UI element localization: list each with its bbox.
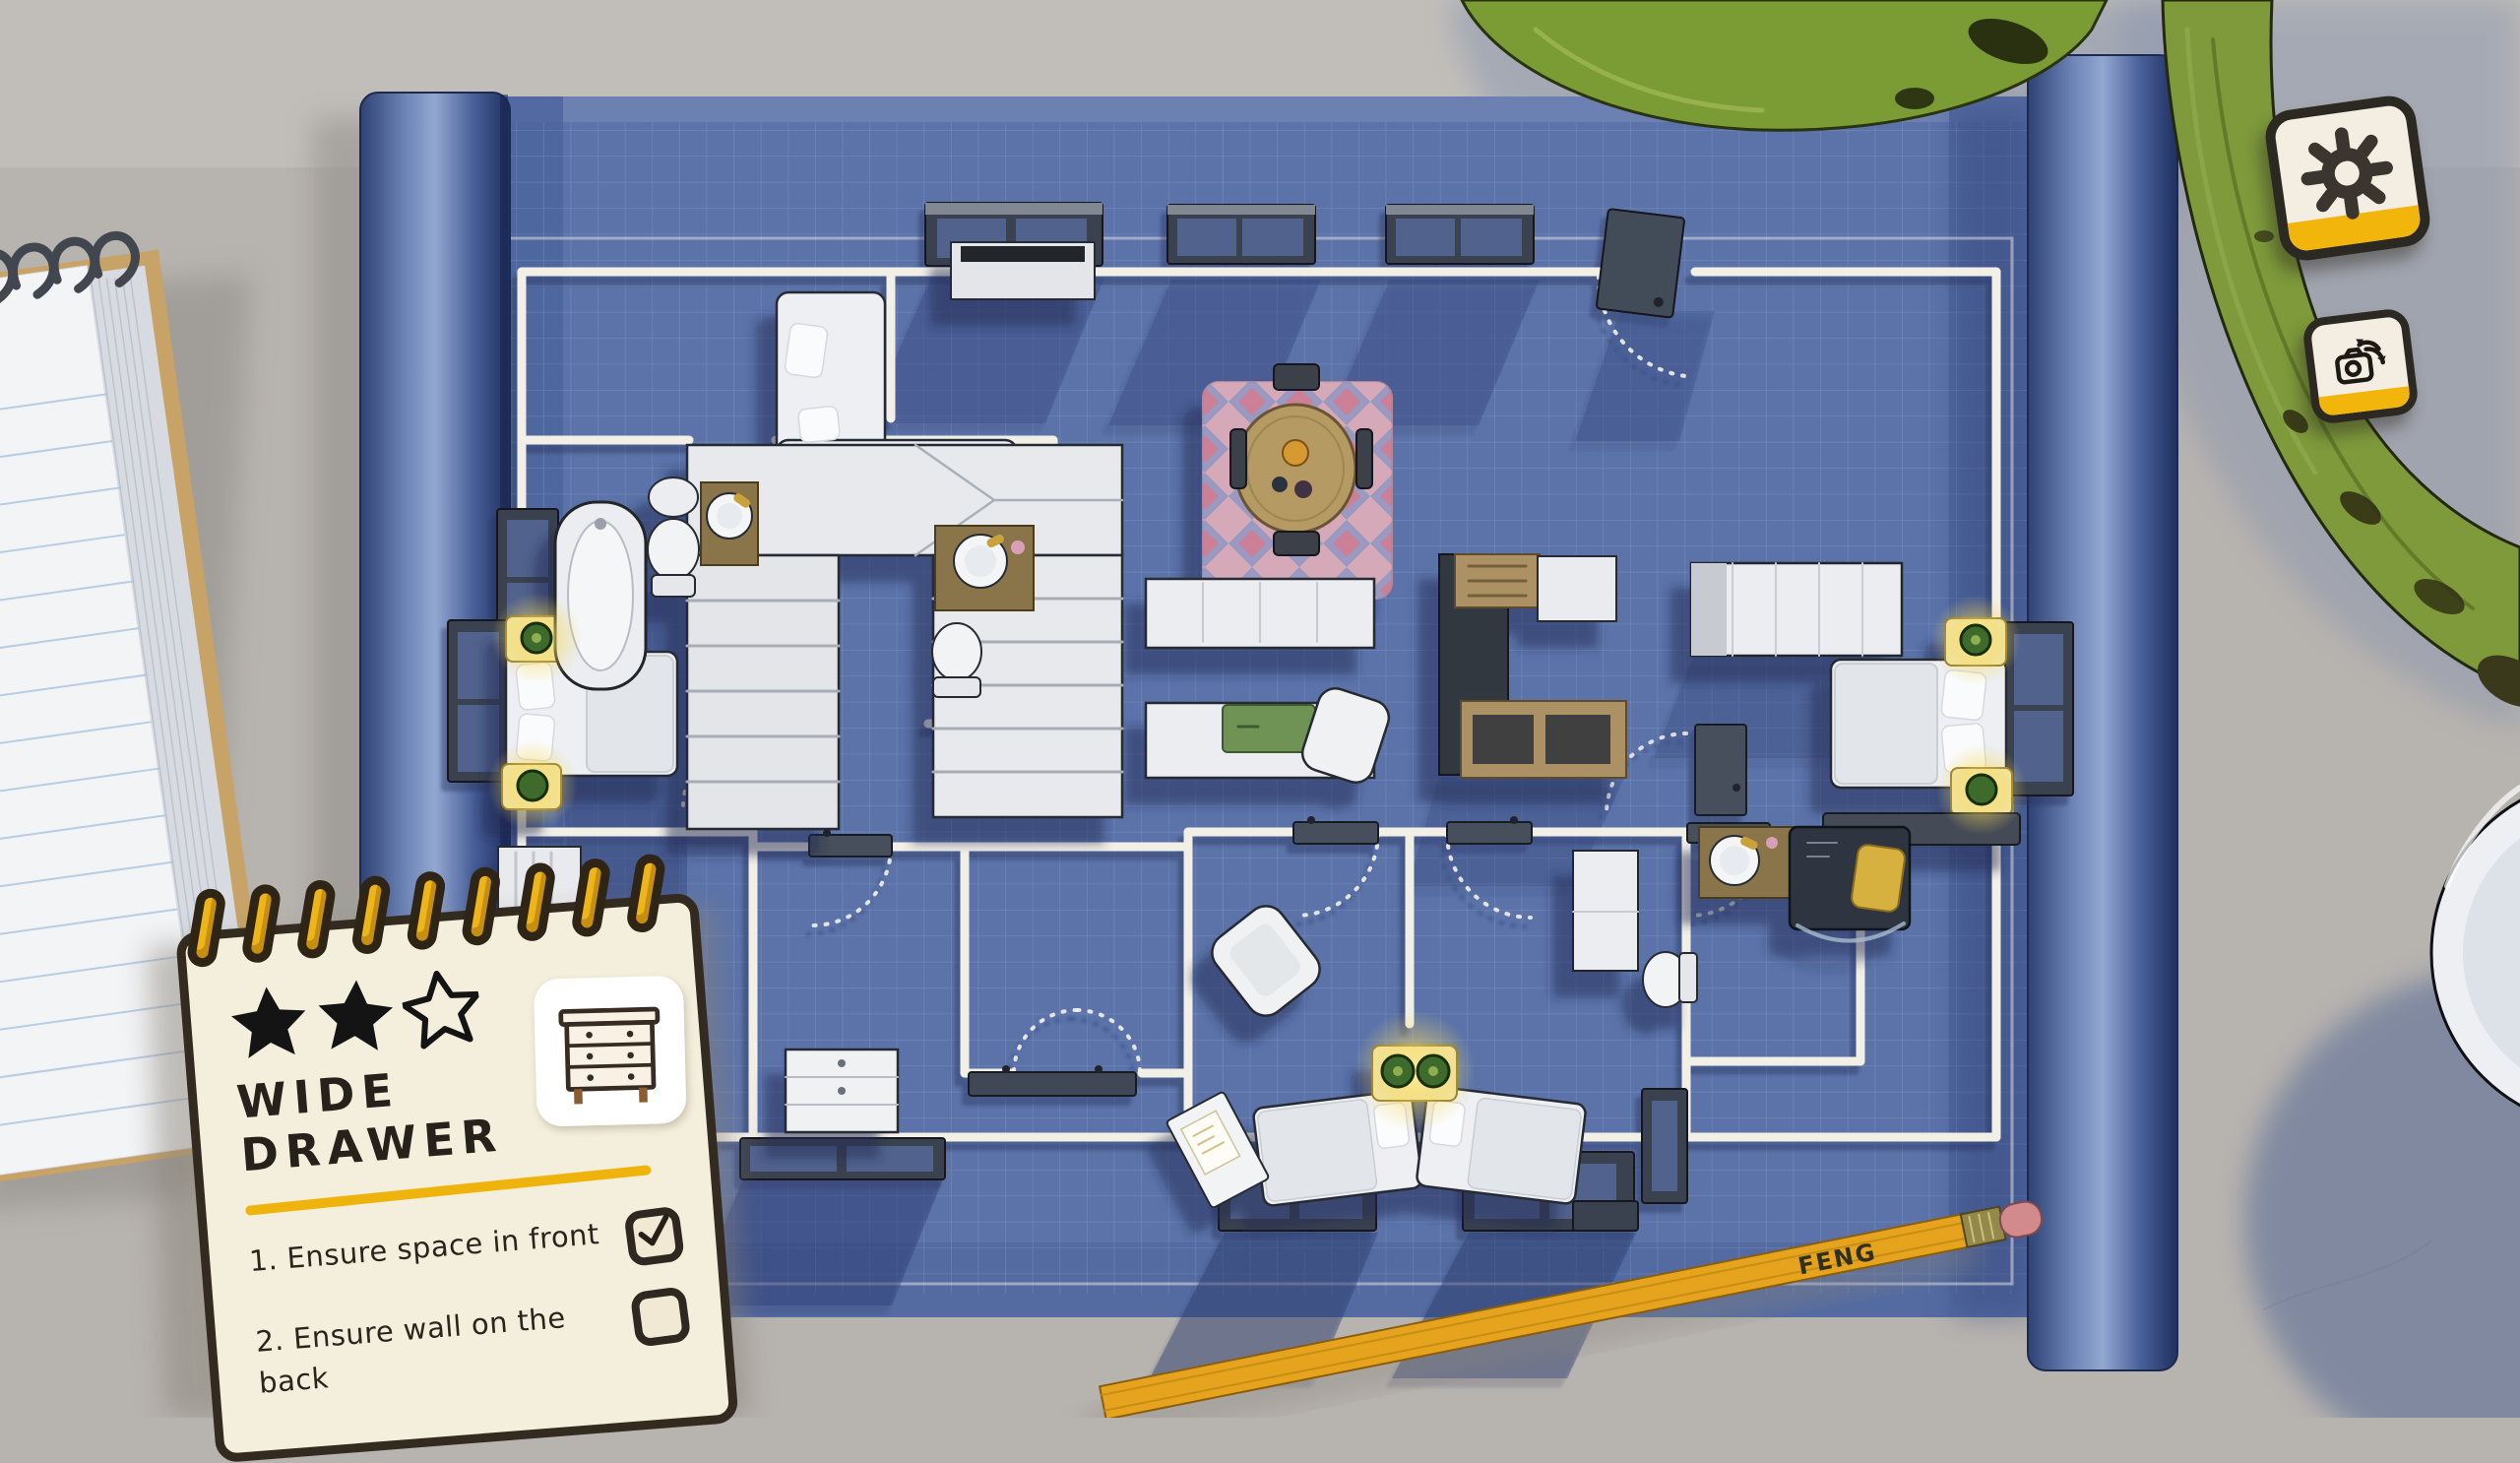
door-leaf[interactable] xyxy=(809,835,892,857)
gear-icon xyxy=(2294,120,2400,226)
window-pane xyxy=(847,1146,933,1172)
lamp-top xyxy=(1971,635,1981,645)
task-label: 2. Ensure wall on the back xyxy=(254,1293,621,1404)
sofa-pillow[interactable] xyxy=(785,323,829,379)
toilet-tank xyxy=(1679,953,1697,1002)
door-handle xyxy=(1095,1065,1102,1073)
bed-duvet xyxy=(1835,664,1937,784)
toilet[interactable] xyxy=(932,623,981,680)
soap xyxy=(1766,837,1778,849)
window-pane xyxy=(1177,219,1236,256)
lamp-top xyxy=(1393,1066,1403,1076)
door-handle xyxy=(1510,816,1518,824)
sink-bowl xyxy=(965,545,996,577)
cup[interactable] xyxy=(1272,477,1288,492)
cup[interactable] xyxy=(1294,480,1312,498)
window-sill xyxy=(1167,205,1315,215)
task-card: WIDE DRAWER 1. Ensure space in front 2. … xyxy=(175,892,739,1463)
dresser-knob xyxy=(838,1059,846,1067)
window-pane xyxy=(750,1146,837,1172)
sink-bowl xyxy=(1720,846,1749,875)
avocado-blotch xyxy=(1895,88,1934,109)
task-checkbox xyxy=(630,1286,692,1348)
pencil-ferrule xyxy=(1961,1207,2006,1247)
lamp-green[interactable] xyxy=(1967,775,1996,804)
star-empty-icon xyxy=(398,965,485,1052)
task-row: 1. Ensure space in front xyxy=(248,1207,684,1296)
wardrobe-side xyxy=(1691,563,1727,656)
dining-chair[interactable] xyxy=(1274,364,1319,390)
window-pane xyxy=(1461,219,1522,256)
lamp-top xyxy=(1428,1066,1438,1076)
lamp-green[interactable] xyxy=(518,771,547,800)
stove-grate[interactable] xyxy=(1545,715,1610,764)
sofa-pillow[interactable] xyxy=(797,406,840,443)
stove-grate[interactable] xyxy=(1473,715,1534,764)
game-viewport: FENG WIDE DRAWER 1. Ensure space in fron… xyxy=(0,0,2520,1418)
star-filled-icon xyxy=(227,981,310,1063)
toilet-tank xyxy=(933,677,980,697)
task-list: 1. Ensure space in front 2. Ensure wall … xyxy=(248,1207,693,1404)
camera-button[interactable] xyxy=(2301,307,2420,425)
sink-bowl xyxy=(717,503,742,529)
dining-chair[interactable] xyxy=(1230,429,1246,488)
toilet[interactable] xyxy=(648,519,699,580)
tv-screen[interactable] xyxy=(961,246,1085,262)
towel[interactable] xyxy=(1851,844,1906,913)
window-pane xyxy=(2014,634,2063,705)
entry-door-leaf[interactable] xyxy=(1597,209,1685,318)
window-pane xyxy=(458,705,499,772)
furniture-sticker xyxy=(534,976,687,1127)
lamp-top xyxy=(532,633,541,643)
window-pane xyxy=(1652,1101,1677,1191)
dining-chair[interactable] xyxy=(1356,429,1372,488)
bathtub-faucet xyxy=(595,518,606,530)
door-leaf[interactable] xyxy=(1447,822,1532,844)
soap xyxy=(1011,541,1025,554)
fruit-bowl[interactable] xyxy=(1283,440,1308,466)
door-handle xyxy=(1732,784,1740,792)
kitchen-cabinet-white[interactable] xyxy=(1538,556,1616,621)
settings-button[interactable] xyxy=(2262,93,2433,264)
camera-rotate-icon xyxy=(2325,326,2395,396)
door-handle xyxy=(1002,1065,1010,1073)
task-checkbox xyxy=(623,1205,685,1267)
star-filled-icon xyxy=(316,976,395,1054)
banana-blotch xyxy=(2254,230,2274,242)
double-door-leaves[interactable] xyxy=(969,1072,1136,1096)
door-leaf[interactable] xyxy=(1695,725,1746,815)
toilet-lid[interactable] xyxy=(649,477,698,517)
dining-chair[interactable] xyxy=(1274,532,1319,555)
dining-table[interactable] xyxy=(1235,405,1355,533)
drawer-dresser-icon xyxy=(543,985,676,1117)
window-sill xyxy=(925,203,1102,215)
window-pane xyxy=(1396,219,1455,256)
door-handle xyxy=(1307,816,1315,824)
bench[interactable] xyxy=(1573,1201,1638,1231)
window-sill xyxy=(1386,205,1534,215)
checkmark-icon xyxy=(631,1207,675,1255)
toilet-tank xyxy=(652,575,695,597)
door-leaf[interactable] xyxy=(1293,822,1378,844)
window-pane xyxy=(1242,219,1303,256)
dresser-knob xyxy=(838,1087,846,1095)
task-row: 2. Ensure wall on the back xyxy=(254,1287,692,1403)
bed-duvet xyxy=(1467,1098,1581,1200)
window-pane xyxy=(507,520,548,577)
cutting-board[interactable] xyxy=(1223,705,1315,752)
bed-duvet xyxy=(1257,1099,1377,1202)
task-label: 1. Ensure space in front xyxy=(248,1212,612,1282)
